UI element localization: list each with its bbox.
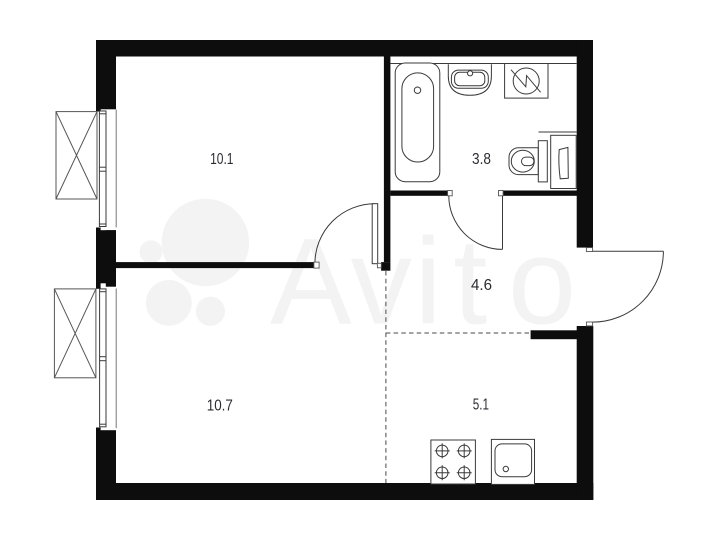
svg-text:3.8: 3.8 <box>472 151 491 168</box>
svg-text:4.6: 4.6 <box>471 276 492 293</box>
svg-text:10.7: 10.7 <box>207 398 233 415</box>
svg-text:10.1: 10.1 <box>210 150 234 168</box>
svg-text:Avito: Avito <box>270 213 576 350</box>
svg-text:5.1: 5.1 <box>473 395 489 413</box>
